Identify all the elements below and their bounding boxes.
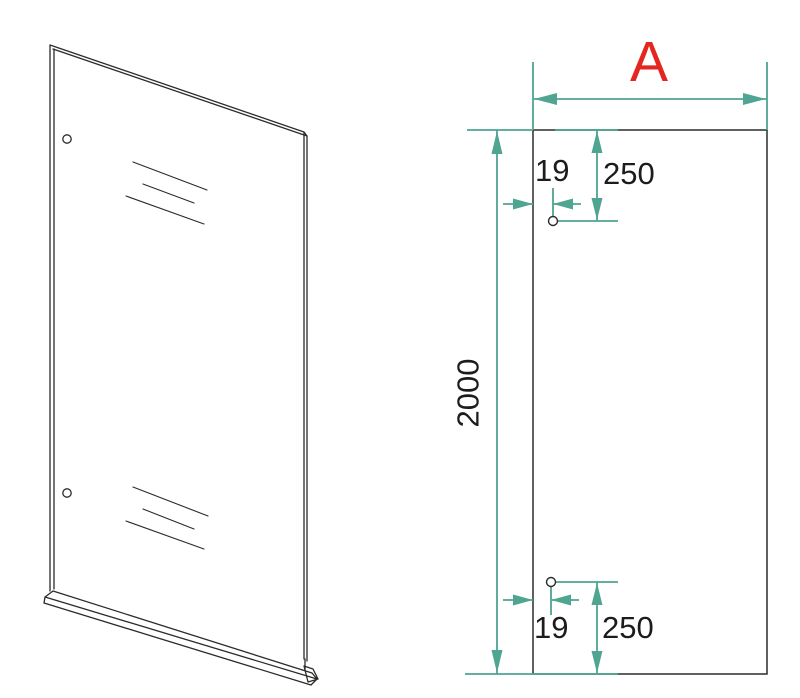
width-label: A <box>630 34 668 91</box>
reflection-lines-upper <box>126 162 207 224</box>
arrow-width-right <box>743 93 766 105</box>
front-view-outline <box>533 130 767 674</box>
arrow-spacing-bottom-down <box>592 651 603 673</box>
mounting-hole-top-iso <box>63 135 71 143</box>
arrow-offset-bottom-left <box>513 595 533 606</box>
panel-front-outline <box>533 130 767 674</box>
arrow-offset-bottom-right <box>551 595 571 606</box>
front-view-holes <box>547 217 558 587</box>
hole-offset-top-label: 19 <box>535 155 569 186</box>
arrow-width-left <box>534 93 557 105</box>
dimension-lines <box>465 62 767 674</box>
arrow-offset-top-left <box>513 199 533 210</box>
reflection-lines-lower <box>126 487 208 549</box>
technical-drawing: A 2000 19 250 19 250 <box>0 0 800 698</box>
arrow-height-bottom <box>492 650 503 673</box>
mounting-hole-bottom-iso <box>63 489 71 497</box>
hole-offset-bottom-label: 19 <box>534 612 568 643</box>
arrow-spacing-top-up <box>592 131 603 153</box>
mounting-hole-bottom-front <box>547 578 556 587</box>
bottom-rail <box>44 591 318 685</box>
arrow-height-top <box>492 131 503 154</box>
isometric-view <box>44 45 318 685</box>
drawing-linework <box>0 0 800 698</box>
arrow-spacing-top-down <box>592 198 603 220</box>
height-label: 2000 <box>453 359 484 428</box>
arrow-offset-top-right <box>553 199 573 210</box>
hole-spacing-top-label: 250 <box>603 158 655 189</box>
mounting-hole-top-front <box>549 217 558 226</box>
arrow-spacing-bottom-up <box>592 583 603 605</box>
hole-spacing-bottom-label: 250 <box>602 612 654 643</box>
glass-panel-outline <box>50 45 307 661</box>
